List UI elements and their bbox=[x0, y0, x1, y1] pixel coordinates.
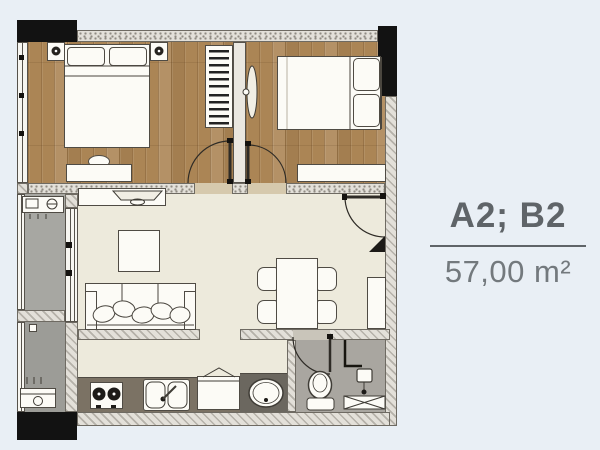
lamp-icon bbox=[52, 47, 164, 56]
floor-plan-screenshot: A2; B2 57,00 m² bbox=[0, 0, 600, 450]
fridge-door-swing bbox=[198, 368, 239, 381]
tv-icon bbox=[113, 191, 162, 205]
washer-details bbox=[20, 377, 56, 406]
wash-basin bbox=[249, 379, 283, 407]
bed-1-blanket-lines bbox=[64, 66, 150, 76]
title-divider bbox=[430, 245, 586, 247]
entrance-door-swing bbox=[342, 193, 386, 252]
entrance-marker bbox=[369, 236, 385, 252]
toilet bbox=[307, 372, 334, 411]
unit-area: 57,00 m² bbox=[418, 254, 598, 290]
shower-mat bbox=[344, 396, 385, 409]
sofa-cushions bbox=[87, 284, 194, 325]
bedroom-2-door-swing bbox=[245, 141, 286, 184]
shower-details bbox=[345, 340, 372, 395]
sink-details bbox=[146, 382, 187, 408]
stove-burners bbox=[93, 388, 121, 409]
bathroom-door-swing bbox=[293, 334, 333, 374]
unit-title: A2; B2 bbox=[418, 197, 598, 236]
ac-unit-details bbox=[26, 199, 57, 219]
standing-mirror bbox=[243, 66, 257, 118]
unit-label-panel: A2; B2 57,00 m² bbox=[418, 197, 598, 290]
bed-2-lines bbox=[287, 57, 381, 129]
bedroom-1-door-swing bbox=[188, 138, 233, 184]
